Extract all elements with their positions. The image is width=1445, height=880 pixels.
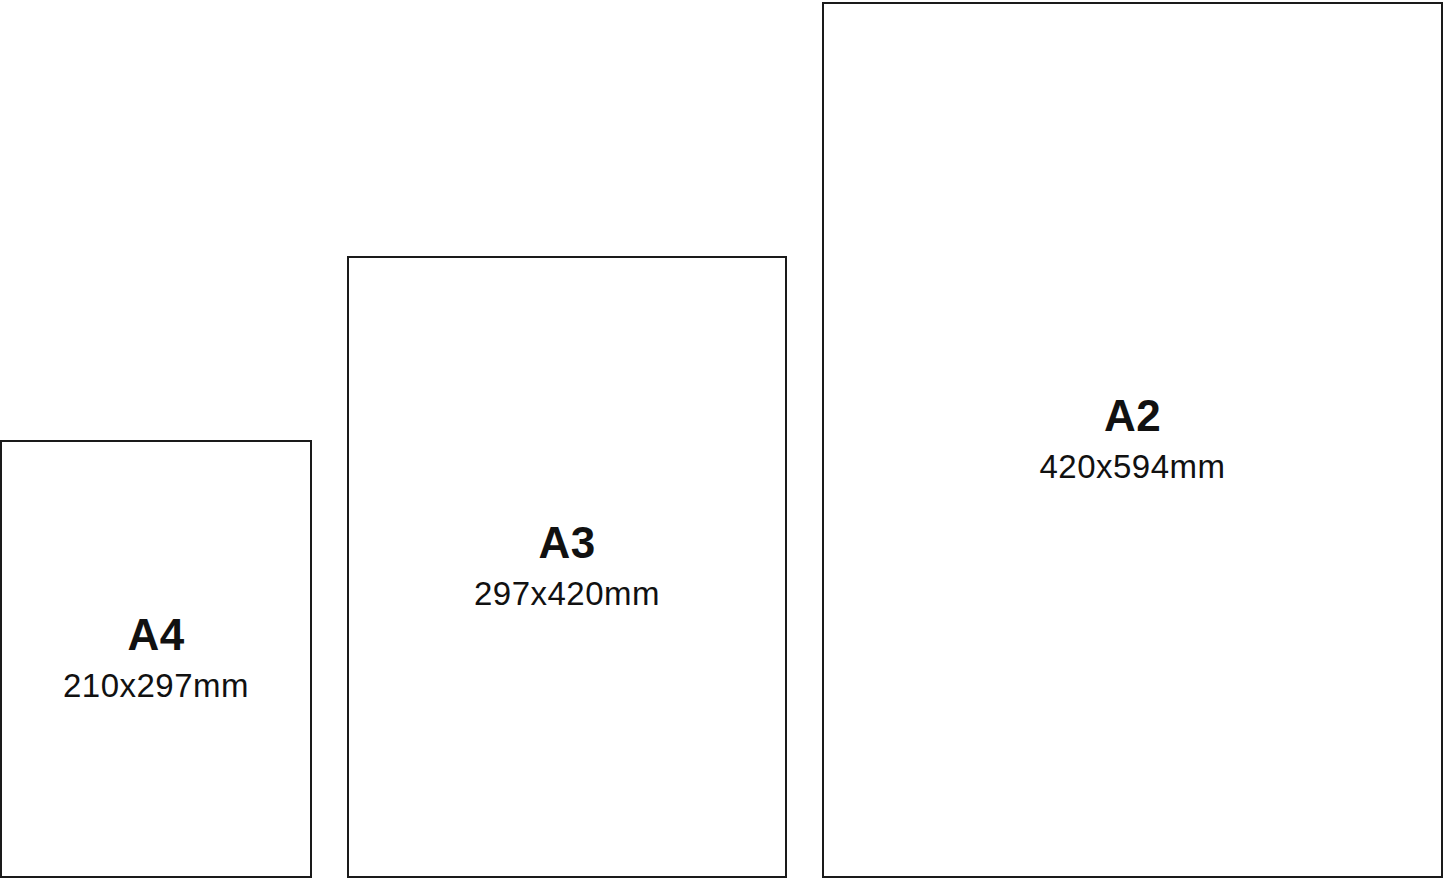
paper-label-a4: A4 bbox=[127, 612, 184, 658]
paper-label-a3: A3 bbox=[538, 520, 595, 566]
paper-dimensions-a2: 420x594mm bbox=[1039, 447, 1225, 487]
paper-label-a2: A2 bbox=[1104, 393, 1161, 439]
paper-box-a3: A3 297x420mm bbox=[347, 256, 787, 878]
paper-box-a4: A4 210x297mm bbox=[0, 440, 312, 878]
paper-size-diagram: A4 210x297mm A3 297x420mm A2 420x594mm bbox=[0, 0, 1445, 880]
paper-dimensions-a4: 210x297mm bbox=[63, 666, 249, 706]
paper-dimensions-a3: 297x420mm bbox=[474, 574, 660, 614]
paper-box-a2: A2 420x594mm bbox=[822, 2, 1443, 878]
